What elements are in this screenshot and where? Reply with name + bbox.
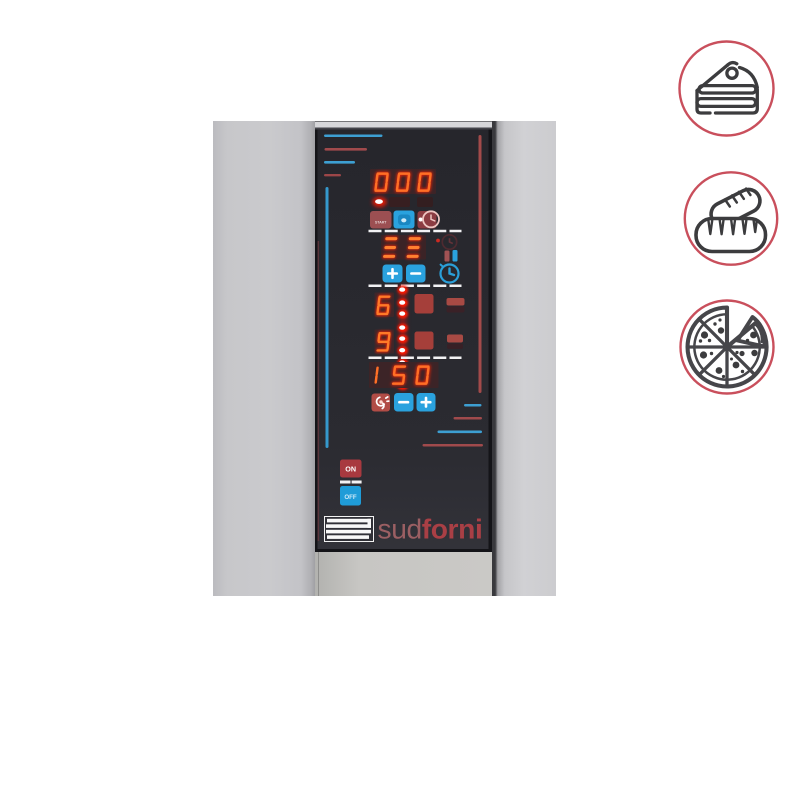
svg-text:START: START xyxy=(375,220,387,224)
svg-text:sudforni: sudforni xyxy=(378,513,483,545)
svg-text:OFF: OFF xyxy=(344,494,357,501)
svg-text:ON: ON xyxy=(345,465,356,474)
